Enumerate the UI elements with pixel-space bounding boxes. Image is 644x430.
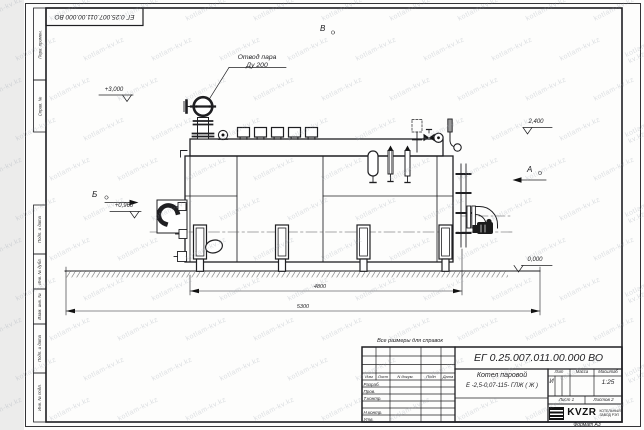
massa-header: Масса: [570, 370, 594, 375]
callout-leader: [209, 68, 286, 100]
sheet-number-value: 1: [572, 397, 575, 402]
manhole: [204, 238, 224, 254]
view-arrows: [105, 31, 546, 205]
row-utv: Утв.: [364, 417, 390, 422]
format-label: Формат А3: [552, 423, 622, 429]
sheets-total-value: 2: [611, 397, 614, 402]
view-label-b: Б: [92, 190, 97, 199]
margin-label-sprav-no: Справ. №: [34, 80, 47, 132]
row-prov: Пров.: [364, 389, 390, 394]
callout-line1: Отвод пара: [226, 54, 288, 62]
col-izm: Изм: [362, 375, 376, 380]
corner-stamp-text: ЕГ 0.25.007.011.00.000 ВО: [46, 8, 143, 25]
sheets-total-cell: Листов 2: [585, 397, 622, 402]
right-top-fittings: [412, 119, 461, 152]
drum-fitting: [218, 130, 227, 139]
lit-value: И: [548, 379, 555, 386]
elevation-2400: 2,400: [520, 119, 552, 126]
col-data: Дата: [441, 375, 455, 380]
reference-note: Все размеры для справок: [360, 338, 460, 344]
boiler-body: [185, 139, 453, 262]
scale-header: Масштаб: [594, 370, 622, 375]
product-name-line2: Е -2,5-0,07-115- ГЛЖ ( Ж ): [456, 383, 548, 390]
margin-label-inv-dubl: Инв. № дубл.: [33, 254, 46, 289]
elevation-plus0960: +0,960: [106, 203, 142, 210]
col-ndoc: N докум.: [390, 375, 421, 380]
margin-label-podp-data-2: Подп. и дата: [33, 324, 46, 373]
sheets-total-label: Листов: [593, 397, 609, 402]
row-tkontr: Т.контр.: [364, 396, 390, 401]
scale-value: 1:25: [594, 379, 622, 386]
margin-label-perv-primen: Перв. примен.: [34, 8, 47, 80]
company-logo-text: KVZR: [567, 407, 596, 419]
view-label-a: А: [527, 165, 532, 174]
rear-flange: [457, 164, 471, 247]
callout-line2: Ду 200: [226, 62, 288, 70]
view-label-v: В: [320, 24, 325, 33]
sheet-number-cell: Лист 1: [548, 397, 585, 402]
drawing-sheet: ЕГ 0.25.007.011.00.000 ВО Перв. примен. …: [0, 0, 644, 430]
col-list: Лист: [376, 375, 390, 380]
sheet-number-label: Лист: [559, 397, 571, 402]
margin-label-podp-data-1: Подп. и дата: [33, 205, 46, 254]
company-name: КОТЕЛЬНЫЙ ЗАВОД РЭП: [599, 409, 620, 417]
elevation-plus3000: +3,000: [96, 87, 132, 94]
lit-header: Лит: [548, 370, 570, 375]
dim-5300: 5300: [287, 304, 319, 310]
steam-outlet-callout: Отвод пара Ду 200: [226, 54, 288, 70]
col-podp: Подп: [421, 375, 441, 380]
company-logo-block: KVZR КОТЕЛЬНЫЙ ЗАВОД РЭП: [548, 404, 622, 422]
product-name-line1: Котел паровой: [456, 372, 548, 380]
ground: [65, 271, 540, 277]
margin-label-inv-podl: Инв. № подл.: [33, 373, 46, 422]
row-razrab: Разраб.: [364, 382, 390, 387]
company-logo-icon: [549, 407, 564, 420]
dim-4800: 4800: [304, 284, 336, 290]
rear-burner-assembly: [467, 206, 498, 234]
level-gauges: [368, 146, 410, 183]
steam-valve: [184, 97, 215, 139]
row-nkontr: Н.контр.: [364, 410, 390, 415]
elevation-marks: [99, 95, 552, 272]
margin-label-vzam-inv: Взам. инв. №: [33, 289, 46, 324]
elevation-0000: 0,000: [518, 257, 552, 264]
company-name-line2: ЗАВОД РЭП: [599, 413, 618, 417]
doc-number: ЕГ 0.25.007.011.00.000 ВО: [456, 350, 621, 367]
top-hatches: [238, 128, 318, 140]
